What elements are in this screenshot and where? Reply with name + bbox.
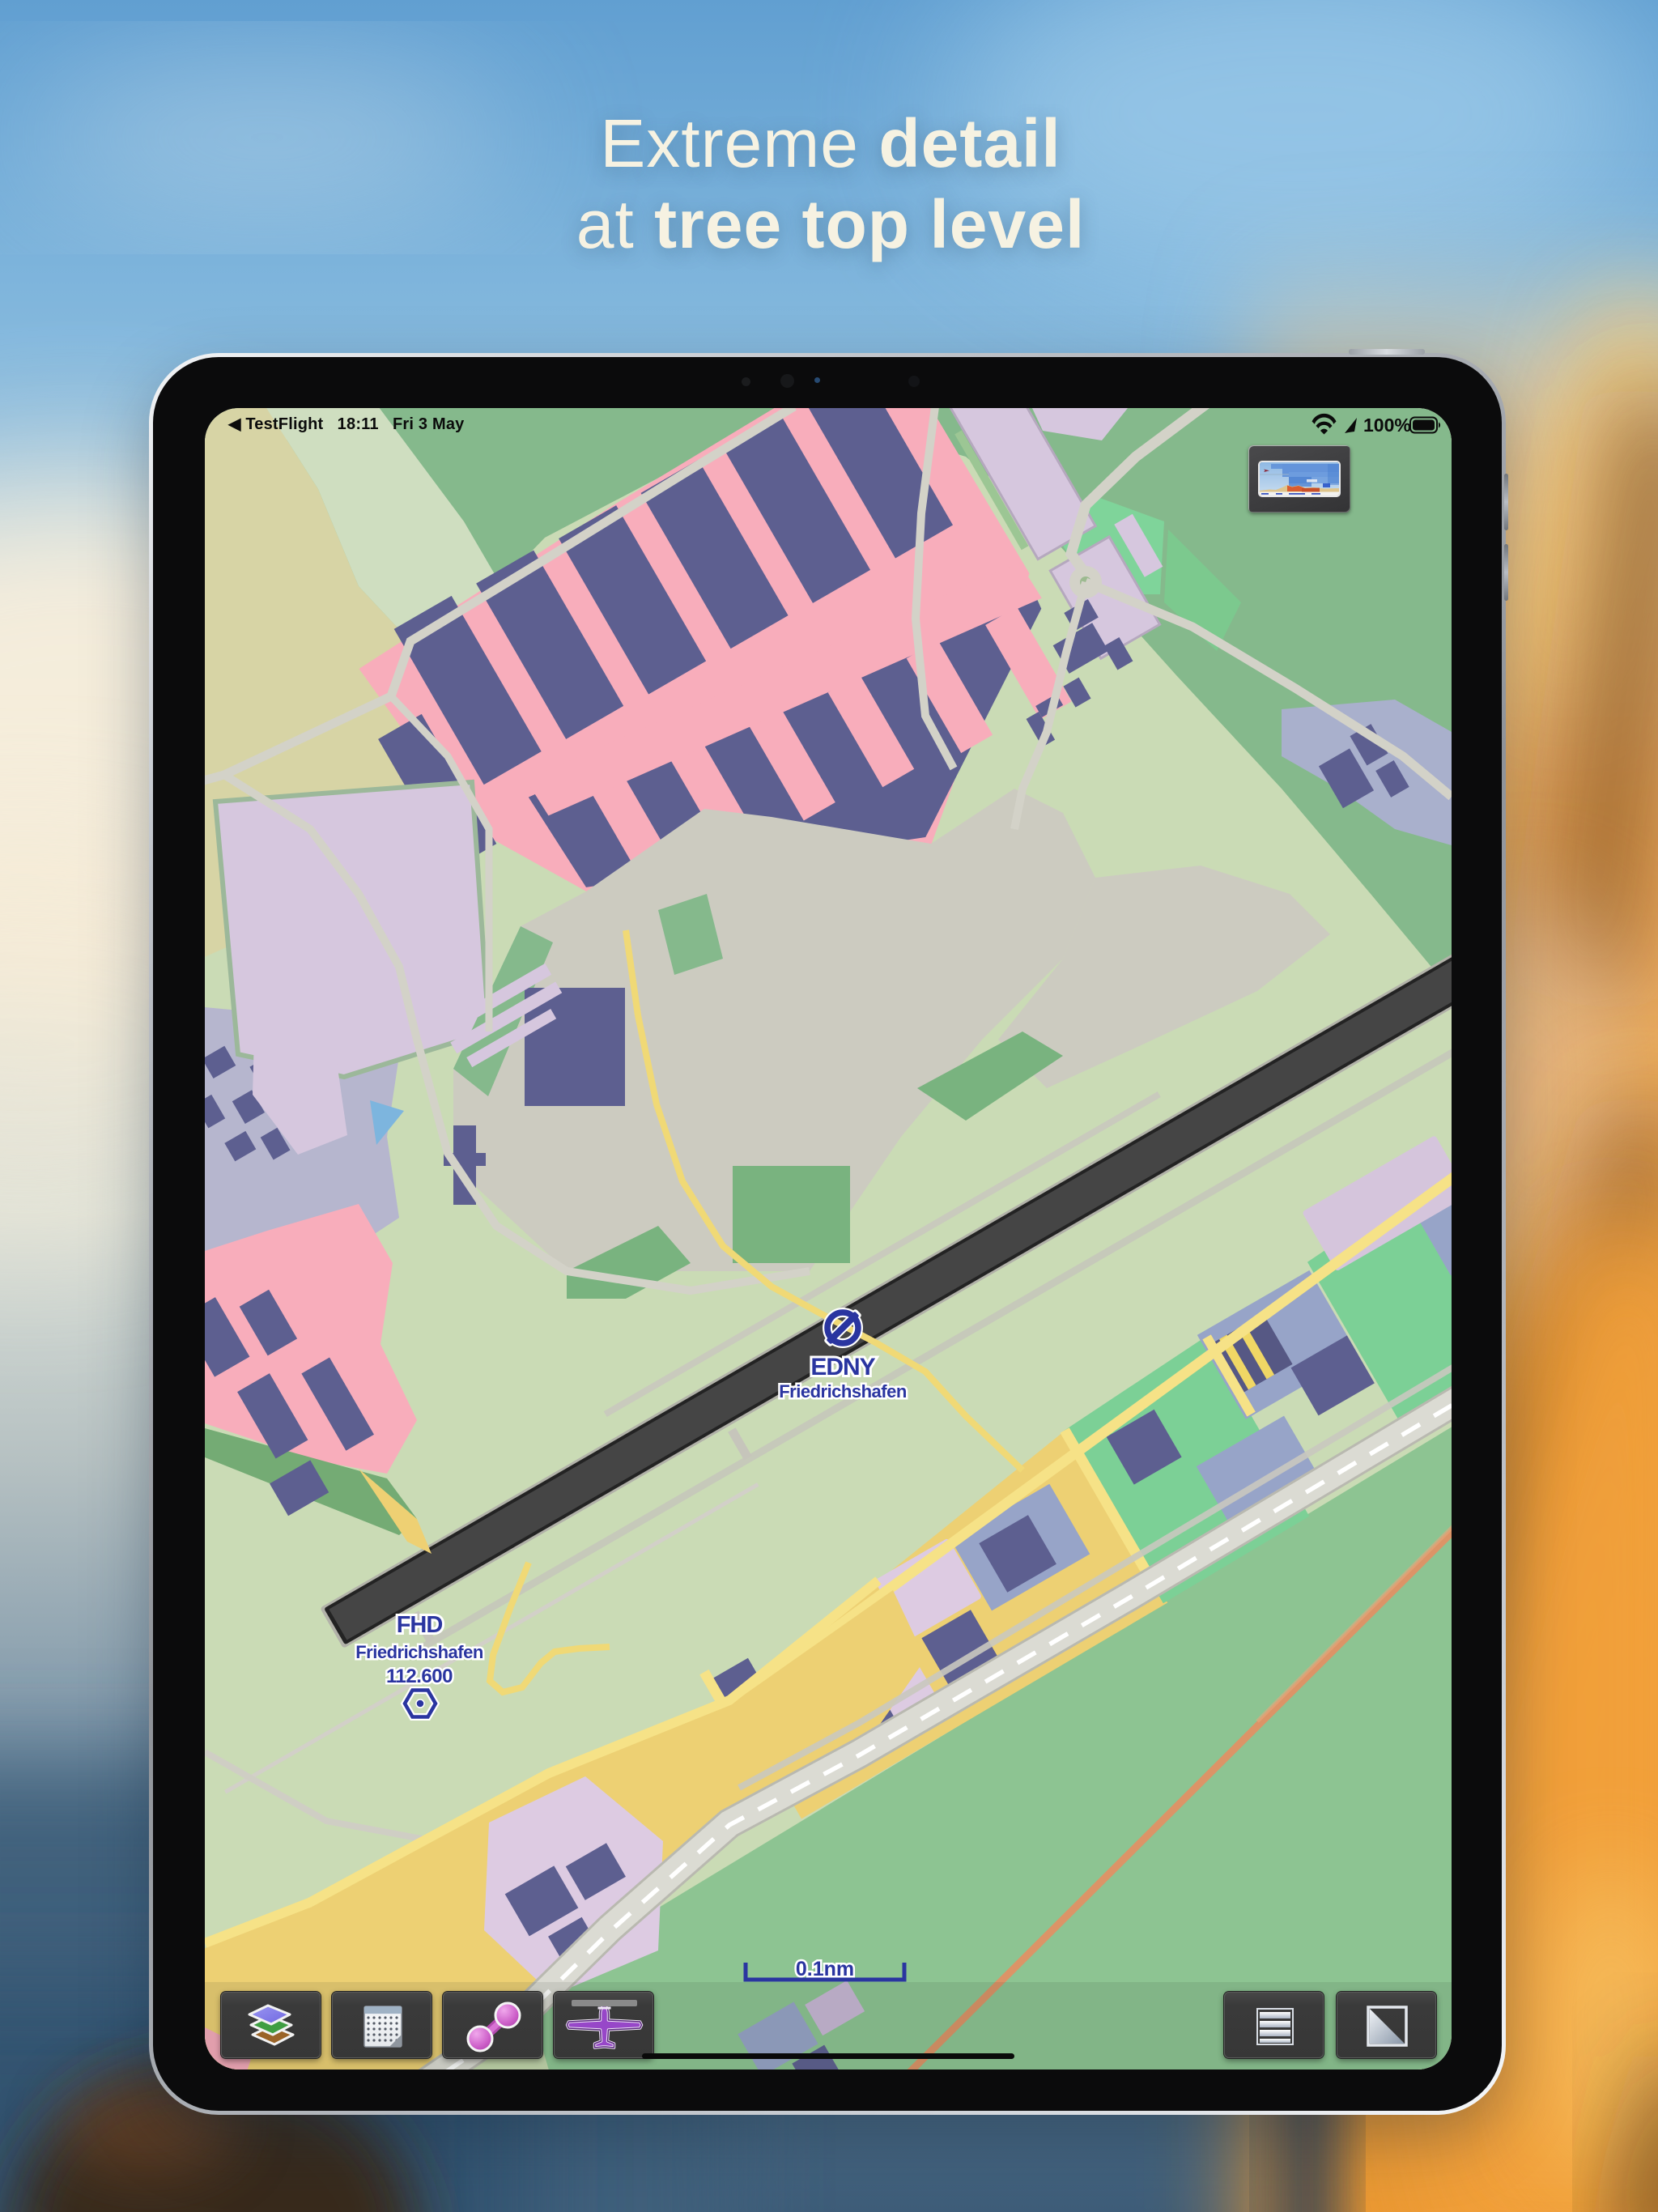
svg-text:0.1nm: 0.1nm: [796, 1958, 854, 1980]
svg-text:FHD: FHD: [397, 1612, 443, 1638]
svg-text:EDNY: EDNY: [810, 1354, 875, 1380]
svg-text:100%: 100%: [1363, 415, 1411, 436]
svg-text:Friedrichshafen: Friedrichshafen: [355, 1642, 483, 1662]
svg-text:Friedrichshafen: Friedrichshafen: [779, 1381, 907, 1402]
svg-text:112.600: 112.600: [386, 1665, 453, 1687]
